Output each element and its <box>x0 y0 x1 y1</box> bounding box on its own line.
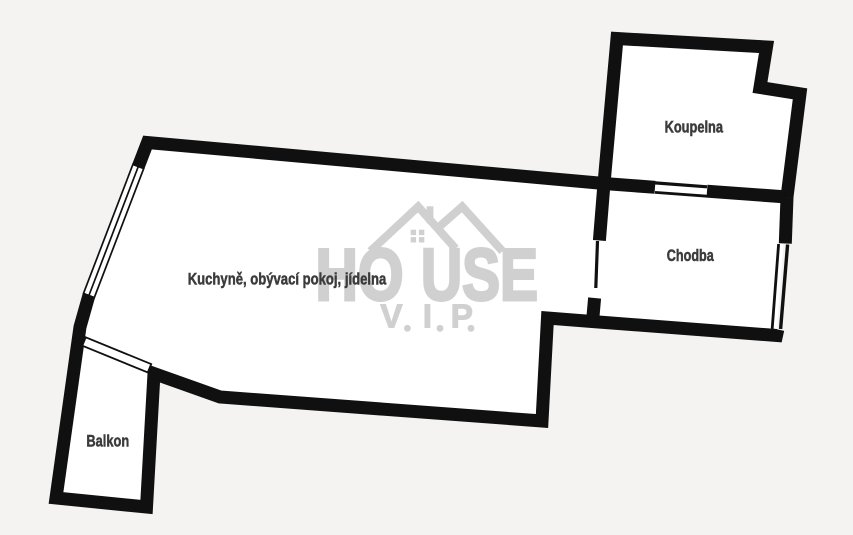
svg-text:V: V <box>380 298 403 335</box>
svg-text:I: I <box>423 298 432 335</box>
svg-text:Kuchyně, obývací pokoj, jídeln: Kuchyně, obývací pokoj, jídelna <box>188 270 387 289</box>
svg-text:Chodba: Chodba <box>667 246 714 265</box>
svg-text:Koupelna: Koupelna <box>665 118 724 137</box>
svg-text:Balkon: Balkon <box>86 431 129 450</box>
svg-text:USE: USE <box>421 235 538 316</box>
